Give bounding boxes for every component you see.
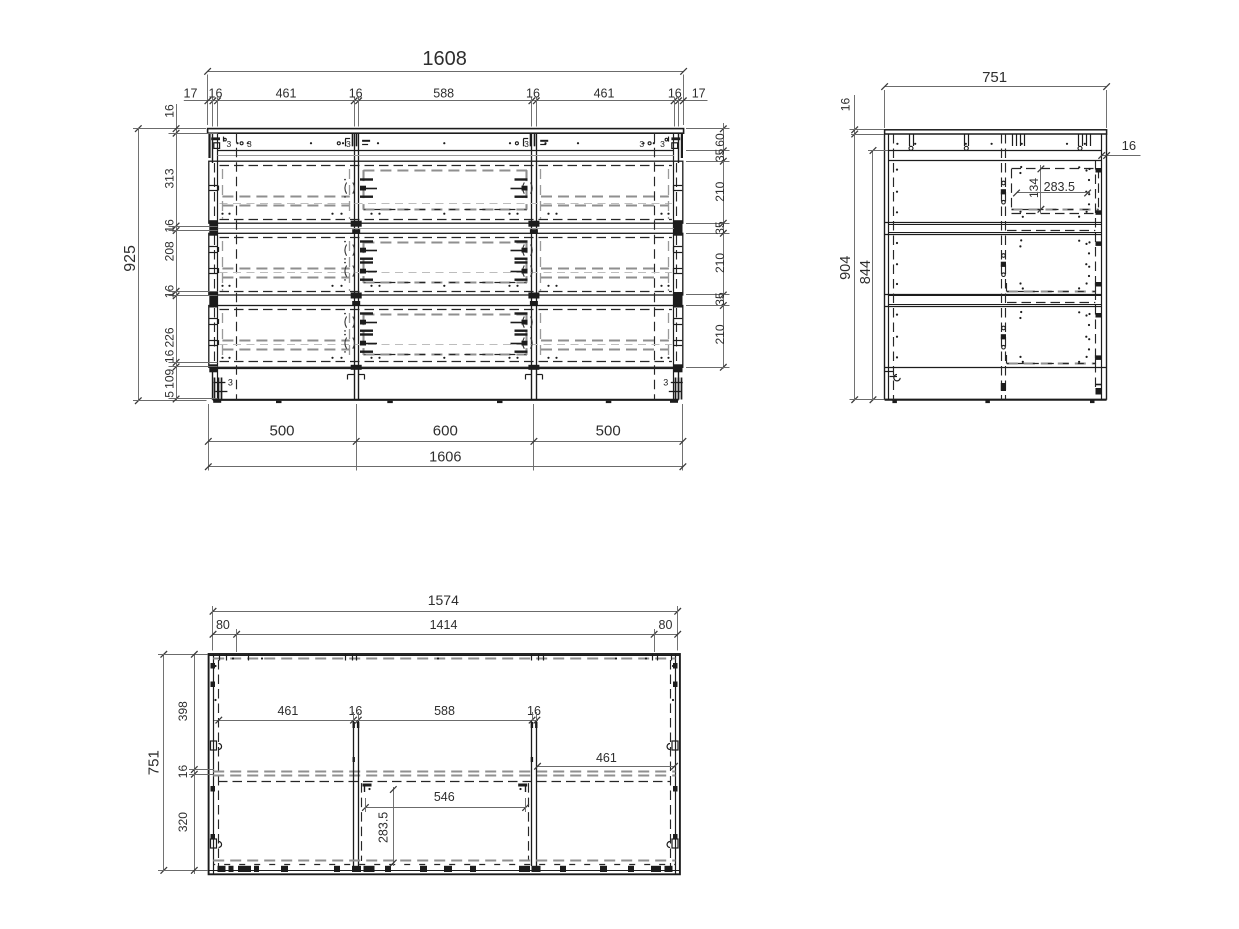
svg-text:210: 210 — [713, 253, 727, 273]
svg-text:751: 751 — [145, 750, 162, 775]
svg-text:588: 588 — [434, 704, 455, 718]
svg-text:16: 16 — [527, 704, 541, 718]
svg-text:3: 3 — [228, 378, 233, 388]
svg-text:3: 3 — [639, 139, 644, 149]
svg-text:546: 546 — [434, 790, 455, 804]
svg-text:3: 3 — [346, 139, 351, 149]
svg-text:16: 16 — [176, 765, 190, 779]
svg-text:80: 80 — [216, 618, 230, 632]
svg-text:500: 500 — [269, 423, 294, 440]
svg-text:1606: 1606 — [429, 449, 461, 465]
svg-text:904: 904 — [838, 256, 854, 280]
svg-text:35: 35 — [713, 221, 727, 235]
svg-text:16: 16 — [1122, 138, 1136, 153]
svg-text:16: 16 — [839, 98, 853, 112]
svg-text:1574: 1574 — [428, 592, 459, 608]
svg-text:751: 751 — [982, 69, 1007, 86]
svg-text:1414: 1414 — [430, 618, 458, 632]
svg-text:844: 844 — [858, 260, 874, 284]
svg-text:210: 210 — [713, 181, 727, 201]
svg-text:3: 3 — [660, 139, 665, 149]
svg-text:283.5: 283.5 — [377, 812, 391, 843]
svg-text:35: 35 — [713, 148, 727, 162]
svg-text:16: 16 — [162, 219, 176, 233]
svg-text:16: 16 — [209, 87, 223, 101]
svg-text:600: 600 — [433, 423, 458, 440]
svg-text:109: 109 — [162, 368, 176, 388]
svg-text:80: 80 — [659, 618, 673, 632]
svg-text:283.5: 283.5 — [1044, 180, 1075, 194]
svg-text:500: 500 — [596, 423, 621, 440]
svg-text:60: 60 — [713, 133, 727, 147]
svg-text:3: 3 — [524, 139, 529, 149]
svg-text:461: 461 — [276, 87, 297, 101]
svg-text:461: 461 — [277, 704, 298, 718]
svg-text:313: 313 — [162, 168, 176, 188]
svg-text:16: 16 — [348, 704, 362, 718]
svg-text:3: 3 — [227, 139, 232, 149]
svg-text:226: 226 — [162, 327, 176, 347]
svg-text:16: 16 — [668, 87, 682, 101]
svg-text:588: 588 — [433, 87, 454, 101]
svg-text:208: 208 — [162, 241, 176, 261]
svg-text:925: 925 — [122, 245, 139, 272]
svg-text:16: 16 — [162, 349, 176, 363]
svg-text:17: 17 — [692, 87, 706, 101]
svg-text:134: 134 — [1027, 178, 1041, 198]
svg-text:461: 461 — [594, 87, 615, 101]
svg-text:398: 398 — [176, 701, 190, 721]
svg-text:5: 5 — [162, 391, 176, 398]
svg-text:320: 320 — [176, 812, 190, 832]
svg-text:16: 16 — [526, 87, 540, 101]
svg-text:3: 3 — [247, 139, 252, 149]
svg-text:35: 35 — [713, 292, 727, 306]
svg-text:3: 3 — [663, 378, 668, 388]
svg-text:16: 16 — [162, 104, 176, 118]
svg-text:461: 461 — [596, 751, 617, 765]
svg-text:16: 16 — [349, 87, 363, 101]
svg-text:17: 17 — [184, 87, 198, 101]
svg-text:1608: 1608 — [422, 48, 467, 70]
svg-text:16: 16 — [162, 285, 176, 299]
svg-text:210: 210 — [713, 324, 727, 344]
